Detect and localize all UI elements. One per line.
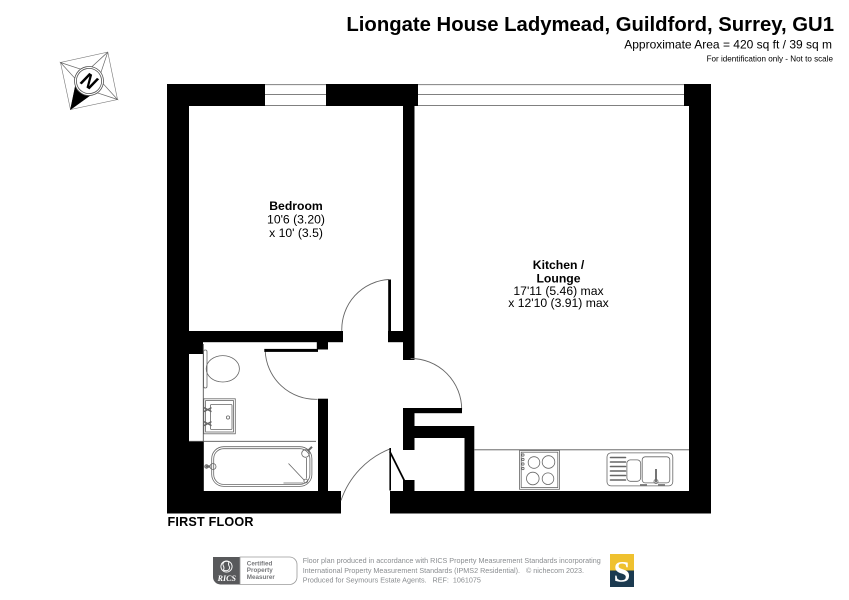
svg-text:x 10' (3.5): x 10' (3.5) xyxy=(269,226,323,240)
svg-text:Floor plan produced in accorda: Floor plan produced in accordance with R… xyxy=(303,556,601,565)
svg-text:Approximate Area = 420 sq ft /: Approximate Area = 420 sq ft / 39 sq m xyxy=(624,38,832,52)
svg-text:x 12'10 (3.91) max: x 12'10 (3.91) max xyxy=(508,296,609,310)
svg-text:S: S xyxy=(614,556,631,589)
svg-text:Bedroom: Bedroom xyxy=(269,199,323,213)
svg-text:International Property Measure: International Property Measurement Stand… xyxy=(303,566,584,575)
svg-text:FIRST FLOOR: FIRST FLOOR xyxy=(168,515,254,529)
svg-text:Liongate House Ladymead, Guild: Liongate House Ladymead, Guildford, Surr… xyxy=(346,14,834,36)
svg-text:Measurer: Measurer xyxy=(247,574,276,581)
svg-text:Kitchen /: Kitchen / xyxy=(533,258,585,272)
svg-text:RICS: RICS xyxy=(217,574,237,583)
svg-text:Produced for Seymours Estate A: Produced for Seymours Estate Agents. REF… xyxy=(303,575,481,584)
svg-text:For identification only - Not: For identification only - Not to scale xyxy=(707,55,834,64)
svg-text:10'6 (3.20): 10'6 (3.20) xyxy=(267,213,325,227)
